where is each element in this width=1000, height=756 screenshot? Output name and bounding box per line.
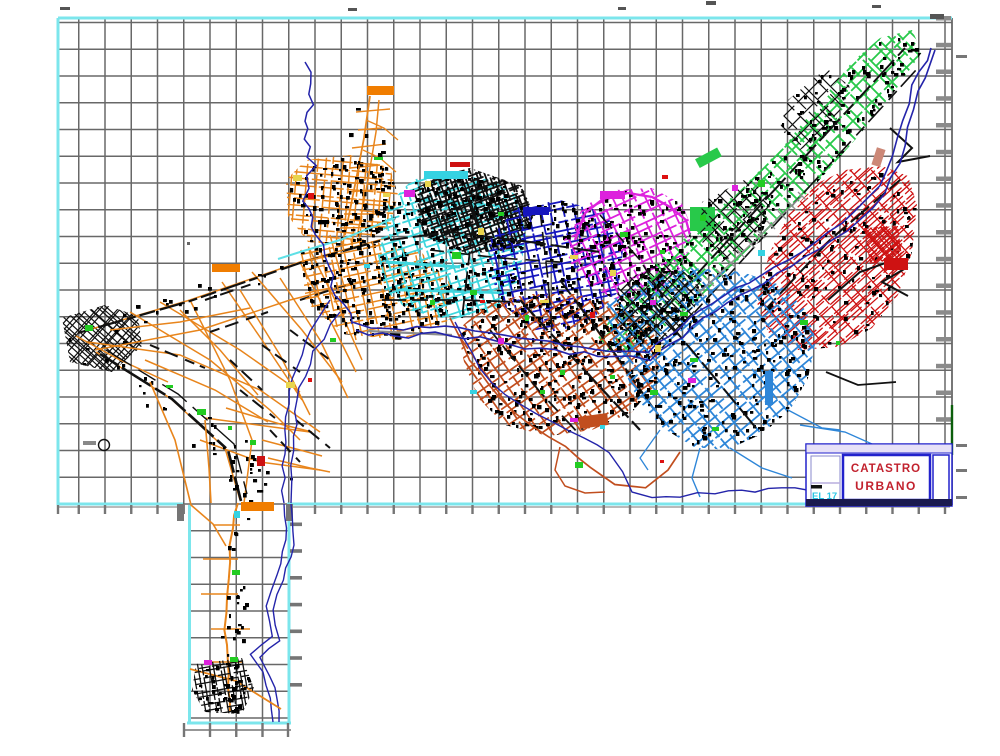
svg-text:EL 17: EL 17 (812, 491, 837, 502)
svg-text:CATASTRO: CATASTRO (851, 463, 921, 475)
svg-text:URBANO: URBANO (855, 479, 917, 493)
